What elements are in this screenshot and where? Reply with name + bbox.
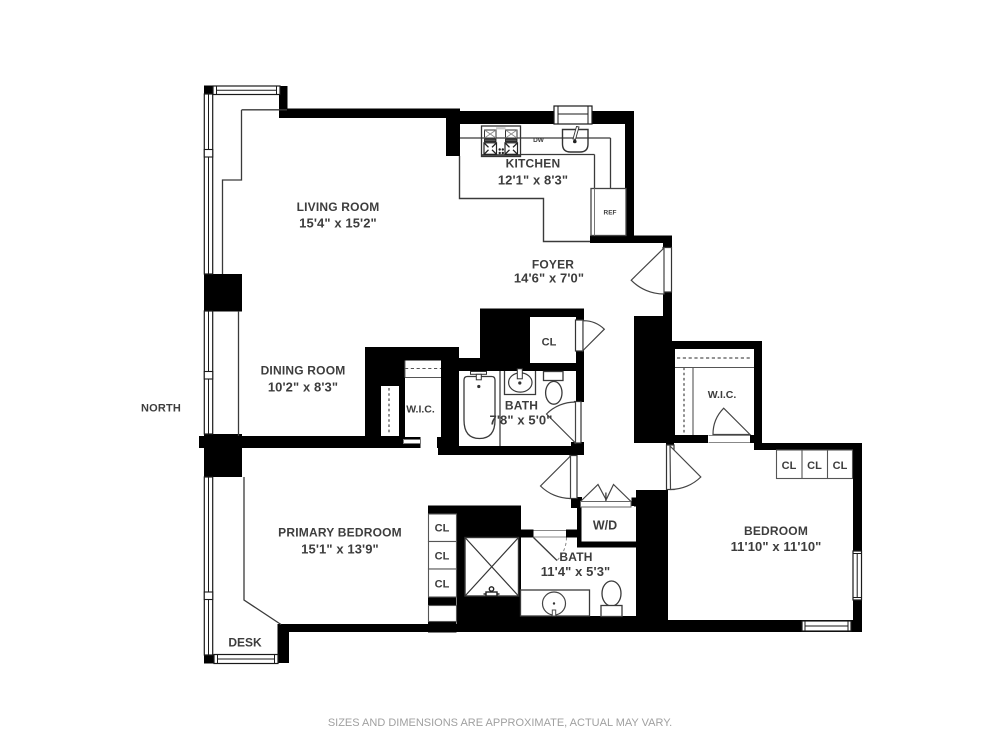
svg-text:CL: CL <box>782 460 797 472</box>
svg-text:10'2" x 8'3": 10'2" x 8'3" <box>268 380 338 395</box>
svg-text:BATH: BATH <box>559 550 592 564</box>
svg-text:BEDROOM: BEDROOM <box>744 524 808 538</box>
svg-text:LIVING ROOM: LIVING ROOM <box>297 200 380 214</box>
svg-text:PRIMARY BEDROOM: PRIMARY BEDROOM <box>278 526 402 540</box>
svg-text:NORTH: NORTH <box>141 403 181 415</box>
svg-text:12'1" x 8'3": 12'1" x 8'3" <box>498 173 568 188</box>
svg-text:SIZES AND DIMENSIONS ARE APPRO: SIZES AND DIMENSIONS ARE APPROXIMATE, AC… <box>328 717 672 729</box>
svg-text:CL: CL <box>807 460 822 472</box>
svg-text:W/D: W/D <box>593 519 617 533</box>
svg-text:CL: CL <box>435 523 450 535</box>
svg-text:15'1" x 13'9": 15'1" x 13'9" <box>301 542 379 557</box>
svg-text:KITCHEN: KITCHEN <box>506 157 561 171</box>
svg-text:15'4" x 15'2": 15'4" x 15'2" <box>299 216 377 231</box>
svg-text:11'10" x 11'10": 11'10" x 11'10" <box>731 539 822 554</box>
svg-text:CL: CL <box>435 551 450 563</box>
svg-text:BATH: BATH <box>505 399 538 413</box>
svg-text:FOYER: FOYER <box>532 258 574 272</box>
svg-text:CL: CL <box>435 579 450 591</box>
svg-text:14'6" x 7'0": 14'6" x 7'0" <box>514 271 584 286</box>
svg-text:DESK: DESK <box>228 636 262 650</box>
svg-text:REF: REF <box>604 210 617 217</box>
svg-text:CL: CL <box>542 337 557 349</box>
svg-text:11'4" x 5'3": 11'4" x 5'3" <box>541 564 611 579</box>
svg-text:CL: CL <box>833 460 848 472</box>
svg-text:W.I.C.: W.I.C. <box>406 404 435 416</box>
svg-text:DINING ROOM: DINING ROOM <box>261 364 346 378</box>
svg-text:DW: DW <box>533 137 545 144</box>
svg-text:7'8" x 5'0": 7'8" x 5'0" <box>490 413 553 428</box>
svg-text:W.I.C.: W.I.C. <box>708 389 737 401</box>
